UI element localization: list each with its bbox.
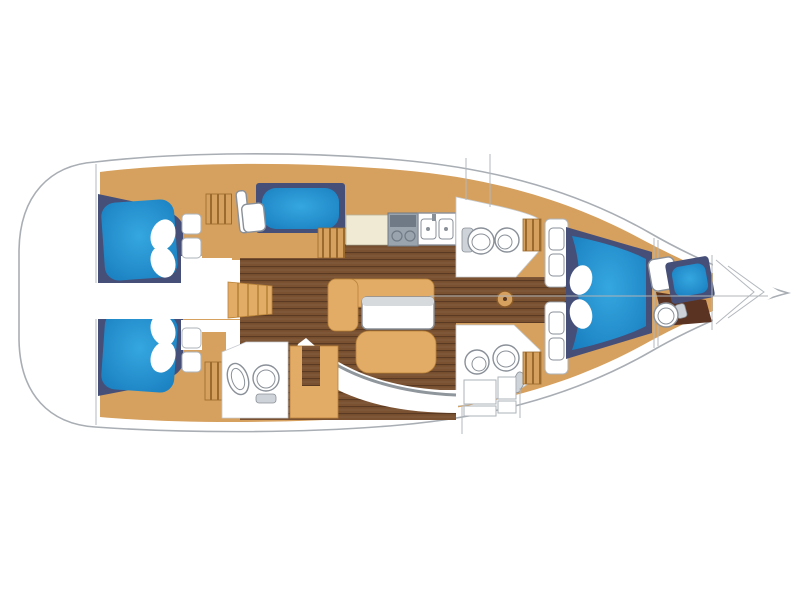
aft-head-step (290, 346, 338, 418)
faucet (432, 214, 436, 221)
cabin-window (182, 238, 201, 258)
locker-louver (523, 219, 541, 251)
aft-cabin-port (98, 194, 183, 284)
yacht-floor-plan (0, 0, 800, 600)
aft-cabin-starboard (98, 308, 183, 396)
wardrobe-port (545, 219, 568, 287)
cabin-window (182, 214, 201, 234)
stove (388, 213, 418, 246)
galley-counter (346, 215, 388, 245)
wardrobe-starboard (545, 302, 568, 374)
cabin-window (182, 328, 201, 348)
saloon-seat (356, 331, 436, 373)
shower-lockers (464, 377, 516, 416)
locker-louver (206, 194, 236, 224)
mast-post (497, 291, 513, 307)
galley (346, 213, 456, 246)
saloon-table (362, 297, 434, 329)
crew-berth-cushion (671, 262, 710, 297)
saloon-bench-arm (328, 279, 358, 331)
crew-cabin (647, 255, 715, 327)
anchor-locker (713, 250, 780, 334)
aft-head (222, 342, 288, 418)
locker-louver (205, 362, 222, 400)
nav-berth-cushion (262, 188, 339, 229)
toilet-tank (256, 394, 276, 403)
nav-locker-louver (318, 228, 348, 258)
locker-louver (523, 352, 541, 384)
double-sink (418, 213, 456, 245)
floor-plan-image (0, 0, 800, 600)
cabin-window (182, 352, 201, 372)
companionway-ladder (228, 282, 272, 318)
nav-station (232, 176, 350, 260)
